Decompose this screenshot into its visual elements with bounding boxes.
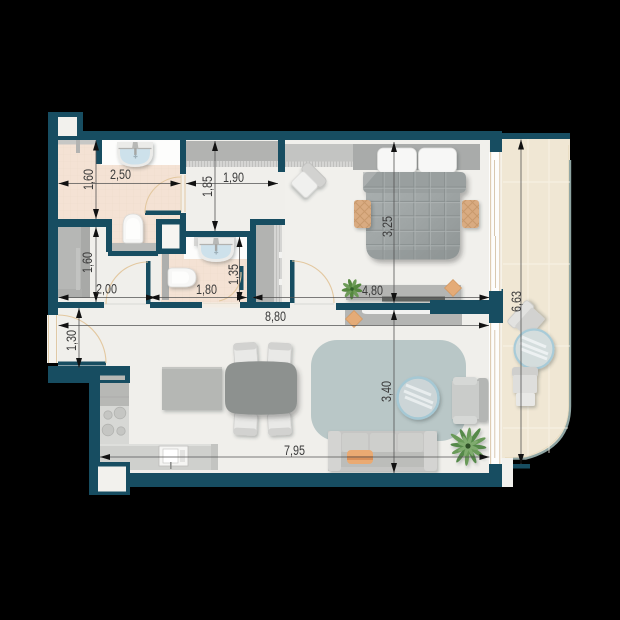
svg-text:6,63: 6,63: [509, 291, 524, 312]
svg-text:2,50: 2,50: [110, 167, 131, 182]
svg-text:1,85: 1,85: [200, 176, 215, 197]
svg-text:3,40: 3,40: [379, 381, 394, 402]
svg-text:4,80: 4,80: [362, 283, 383, 298]
svg-text:8,80: 8,80: [265, 309, 286, 324]
svg-text:1,35: 1,35: [226, 264, 241, 285]
svg-text:1,30: 1,30: [64, 330, 79, 351]
svg-text:1,60: 1,60: [81, 169, 96, 190]
svg-text:2,00: 2,00: [96, 282, 117, 297]
svg-text:3,25: 3,25: [380, 216, 395, 237]
svg-text:1,80: 1,80: [196, 282, 217, 297]
svg-text:1,90: 1,90: [223, 170, 244, 185]
svg-text:7,95: 7,95: [284, 443, 305, 458]
svg-text:1,60: 1,60: [80, 252, 95, 273]
